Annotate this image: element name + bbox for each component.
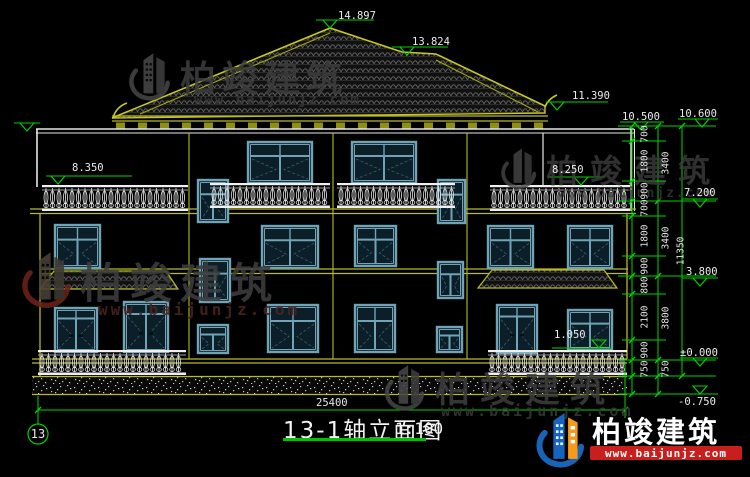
baijun-logo-icon [500,144,540,192]
door [497,305,537,353]
overall-dimension-label: 25400 [316,397,348,409]
dim-label: 750 [640,360,651,377]
watermark-url-bar: www.baijunjz.com [590,446,742,460]
window [488,226,533,268]
dim-label: 800 [640,276,651,293]
drawing-scale: 1:100 [395,419,443,438]
window [438,262,463,298]
watermark-url: www.baijunjz.com [605,447,727,460]
elevation-label-ground: ±0.000 [680,347,718,359]
axis-bubble-label: 13 [28,427,48,441]
elevation-label-terrace-right: 8.250 [552,164,584,176]
watermark-url: www.baijunjz.com [194,92,361,108]
drawing-canvas [0,0,750,477]
elevation-label-parapet-right: 10.600 [679,108,717,120]
dim-label: 1800 [640,150,651,173]
baijun-logo-icon [128,48,174,104]
window [248,142,312,183]
window [352,142,416,183]
elevation-label-eave-right: 11.390 [572,90,610,102]
dim-label: 700 [640,125,651,142]
cad-elevation-sheet: 柏竣建筑 www.baijunjz.com 柏竣建筑 www.baijunjz.… [0,0,750,477]
elevation-label-floor3: 7.200 [684,187,716,199]
elevation-label-terrace-left: 8.350 [72,162,104,174]
dim-label: 750 [661,360,672,377]
elevation-label-floor2: 3.800 [686,266,718,278]
dim-label: 900 [640,182,651,199]
dim-label: 1800 [640,225,651,248]
dim-label: 3800 [661,307,672,330]
elevation-label-sill: 1.050 [554,329,586,341]
baijun-logo-icon [20,246,76,312]
dim-label: 700 [640,199,651,216]
elevation-label-ridge: 14.897 [338,10,376,22]
dim-label: 900 [640,257,651,274]
title-underline [283,438,426,441]
dim-label: 11350 [676,237,687,266]
watermark-name: 柏竣建筑 [592,409,720,451]
window [355,226,396,266]
dim-label: 3400 [661,227,672,250]
railing [42,185,188,211]
elevation-label-shoulder: 13.824 [412,36,450,48]
dim-label: 3400 [661,152,672,175]
window [437,327,462,352]
dim-label: 900 [640,341,651,358]
elevation-label-site: -0.750 [678,396,716,408]
watermark-url: www.baijunjz.com [98,300,300,319]
window [198,325,228,353]
baijun-logo-icon [383,360,429,414]
baijun-logo-icon [536,406,588,472]
elevation-label-parapet-left: 10.500 [622,111,660,123]
dim-label: 2100 [640,306,651,329]
door [55,308,97,352]
window [568,226,612,268]
window [355,305,395,352]
